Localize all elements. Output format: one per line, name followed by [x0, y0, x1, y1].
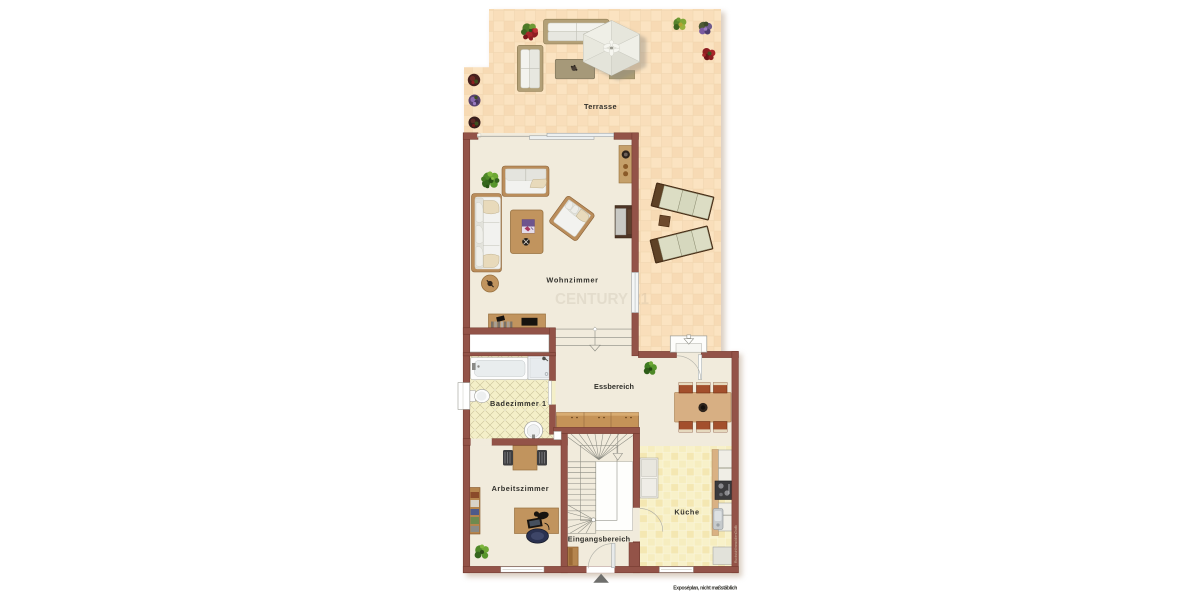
svg-text:Arbeitszimmer: Arbeitszimmer	[492, 484, 549, 493]
svg-text:Essbereich: Essbereich	[594, 382, 634, 391]
svg-text:RuckstuhlImmobilienGrafik: RuckstuhlImmobilienGrafik	[734, 525, 738, 563]
svg-text:Wohnzimmer: Wohnzimmer	[546, 276, 598, 285]
svg-text:Eingangsbereich: Eingangsbereich	[568, 535, 630, 544]
svg-text:Terrasse: Terrasse	[584, 102, 617, 111]
svg-text:Exposéplan, nicht maßstäblich: Exposéplan, nicht maßstäblich	[673, 586, 737, 592]
svg-text:Badezimmer 1: Badezimmer 1	[490, 399, 546, 408]
svg-text:Küche: Küche	[674, 508, 699, 517]
